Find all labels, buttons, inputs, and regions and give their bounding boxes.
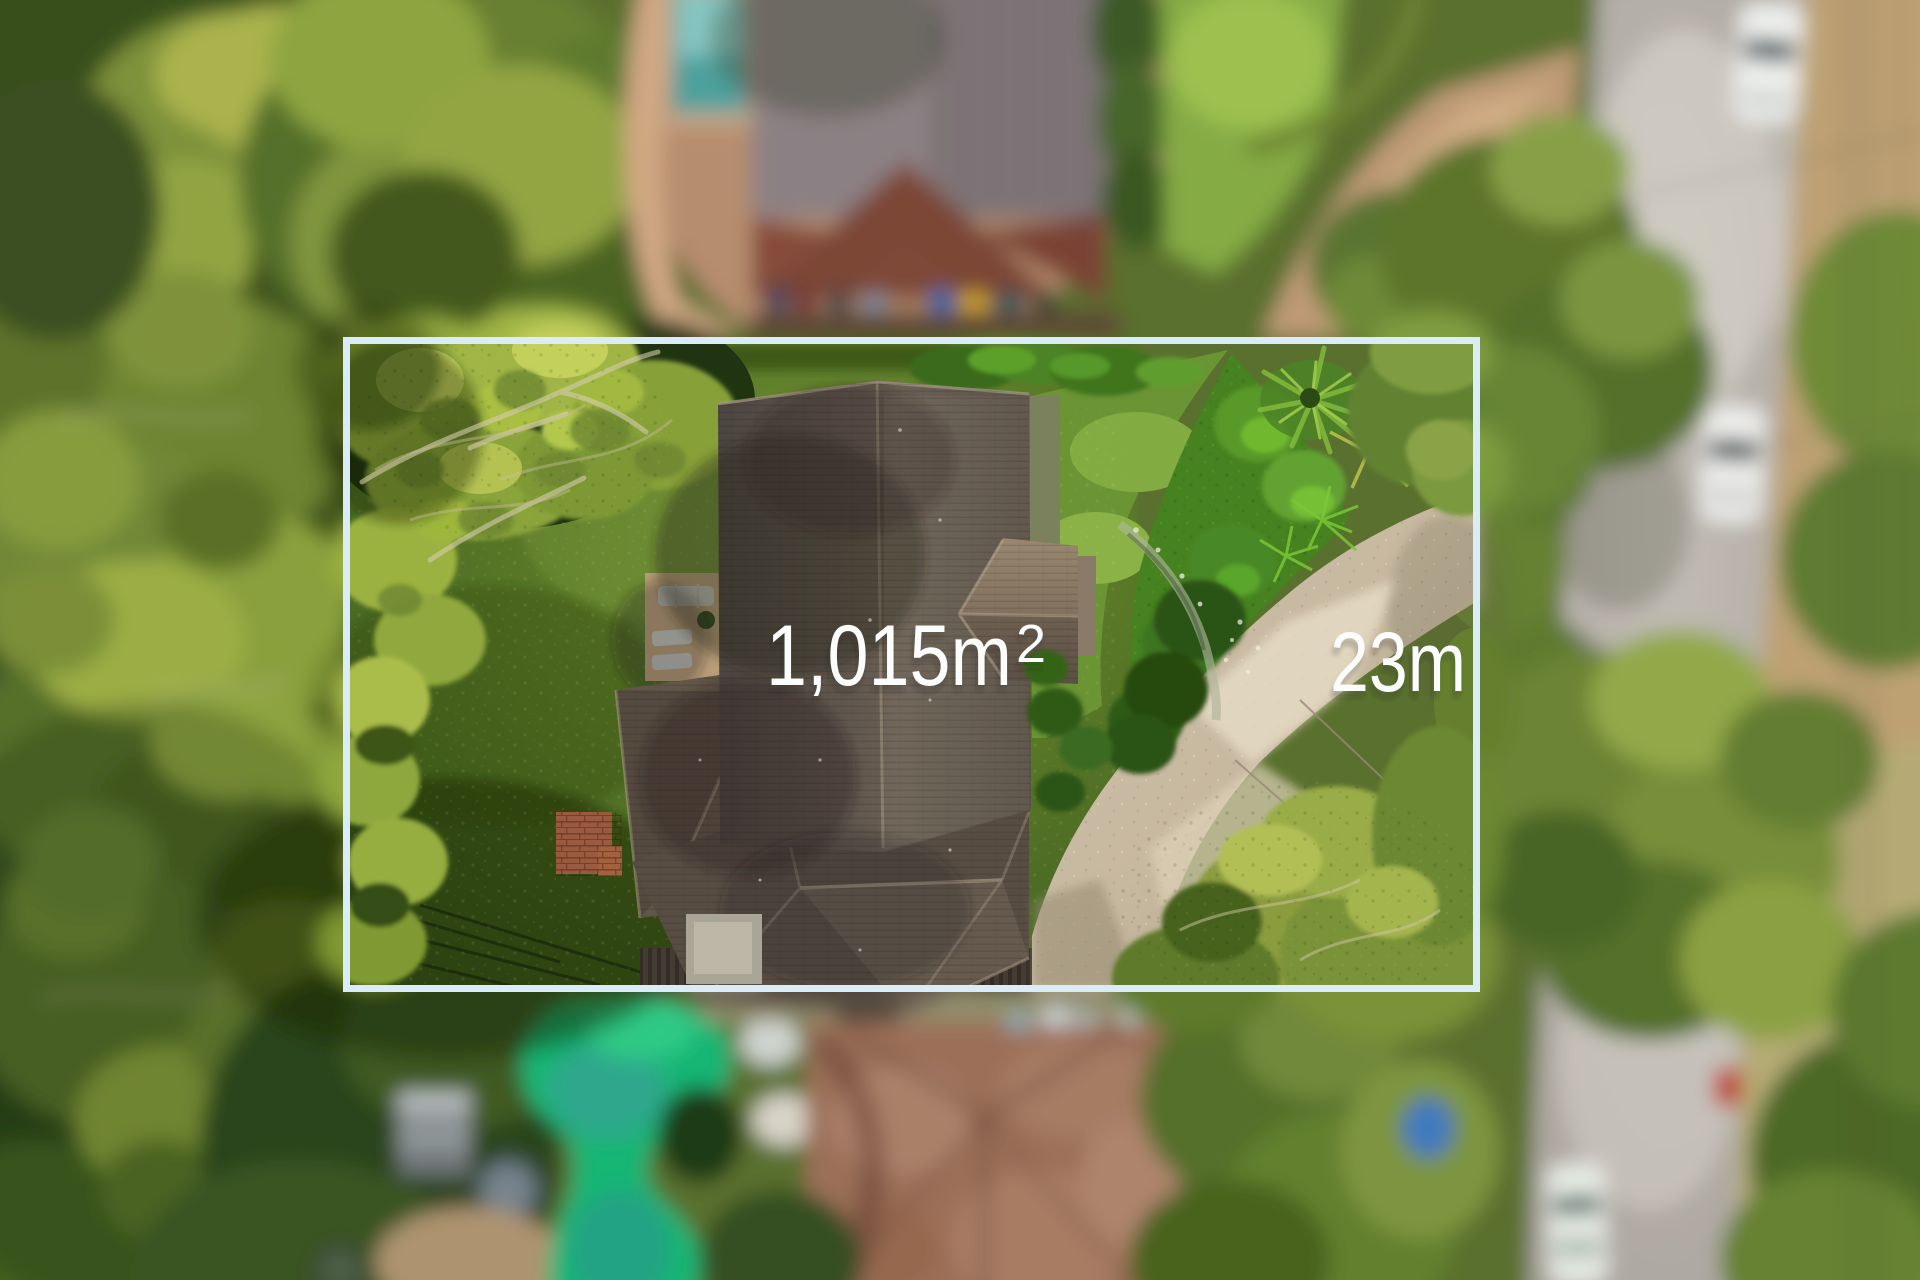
svg-text:1,015m: 1,015m (766, 608, 1012, 704)
svg-text:2: 2 (1016, 614, 1046, 674)
svg-text:23m: 23m (1330, 615, 1466, 709)
